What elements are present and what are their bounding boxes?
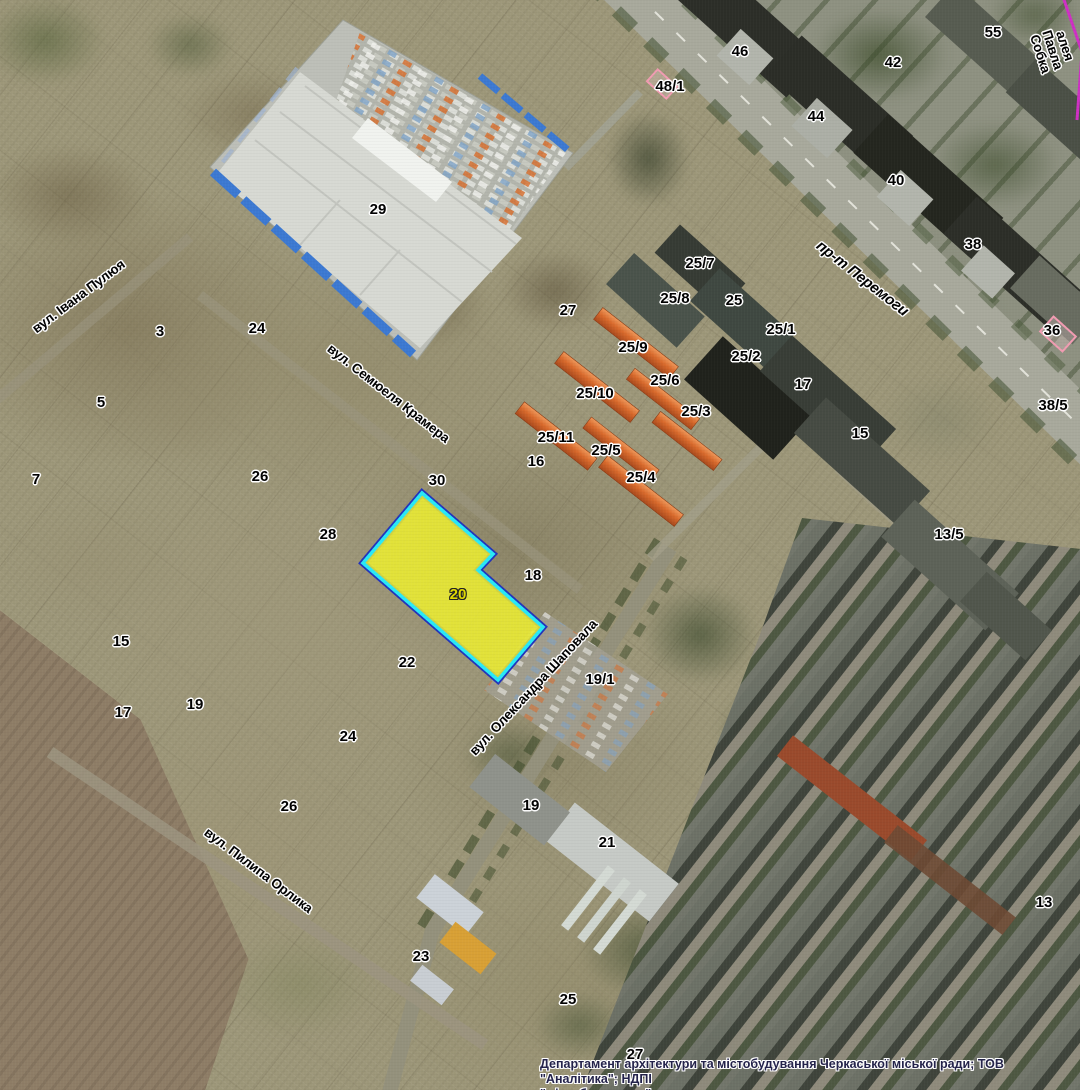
- highlighted-parcel[interactable]: [363, 493, 543, 680]
- outlined-building-48-1: [647, 69, 677, 98]
- rowhouses-orange: [515, 308, 722, 527]
- warehouse-29: [210, 20, 573, 360]
- satellite-map[interactable]: 46554248/1444038292725/725/82525/13625/9…: [0, 0, 1080, 1090]
- attribution-line1: Департамент архітектури та містобудуванн…: [540, 1057, 1076, 1087]
- map-attribution: Департамент архітектури та містобудуванн…: [540, 1057, 1076, 1090]
- road-puliuia: [0, 237, 190, 418]
- attribution-line2: "містобудування": [540, 1087, 1076, 1090]
- map-graphics-layer: [0, 0, 1080, 1090]
